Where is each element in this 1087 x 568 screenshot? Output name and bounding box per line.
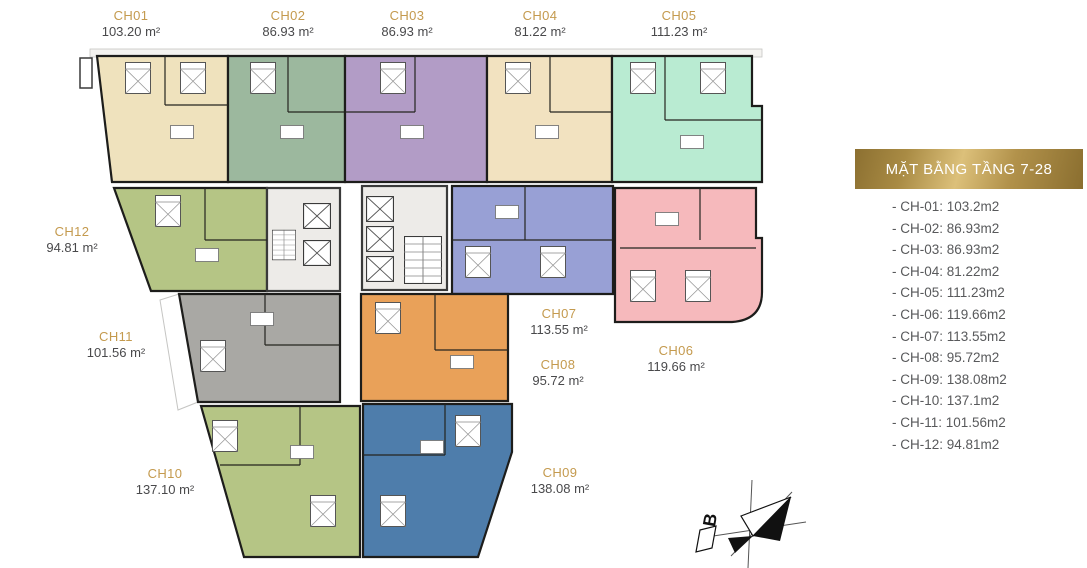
elevator-icon (304, 241, 331, 266)
table-icon (421, 441, 444, 454)
unit-label-ch05: CH05 111.23 m² (651, 8, 708, 40)
legend-item: - CH-11: 101.56m2 (892, 412, 1083, 434)
legend-item: - CH-09: 138.08m2 (892, 369, 1083, 391)
table-icon (536, 126, 559, 139)
unit-code: CH02 (262, 8, 313, 24)
table-icon (451, 356, 474, 369)
legend-item: - CH-05: 111.23m2 (892, 282, 1083, 304)
unit-code: CH04 (514, 8, 565, 24)
legend-item: - CH-03: 86.93m2 (892, 239, 1083, 261)
bed-icon (456, 416, 481, 447)
elevator-icon (304, 204, 331, 229)
bed-icon (631, 271, 656, 302)
legend-item: - CH-06: 119.66m2 (892, 304, 1083, 326)
unit-label-ch01: CH01 103.20 m² (102, 8, 161, 40)
legend-panel: MẶT BẰNG TẦNG 7-28 - CH-01: 103.2m2 - CH… (855, 149, 1083, 455)
bed-icon (381, 496, 406, 527)
unit-label-ch09: CH09 138.08 m² (531, 465, 590, 497)
unit-area: 103.20 m² (102, 24, 161, 40)
legend-item: - CH-12: 94.81m2 (892, 434, 1083, 456)
bed-icon (156, 196, 181, 227)
bed-icon (466, 247, 491, 278)
unit-code: CH11 (87, 329, 146, 345)
bed-icon (506, 63, 531, 94)
corner-balcony (80, 58, 92, 88)
unit-code: CH12 (46, 224, 97, 240)
legend-item: - CH-04: 81.22m2 (892, 261, 1083, 283)
table-icon (401, 126, 424, 139)
unit-label-ch12: CH12 94.81 m² (46, 224, 97, 256)
unit-area: 94.81 m² (46, 240, 97, 256)
unit-label-ch08: CH08 95.72 m² (532, 357, 583, 389)
unit-label-ch07: CH07 113.55 m² (530, 306, 588, 338)
bed-icon (686, 271, 711, 302)
unit-label-ch11: CH11 101.56 m² (87, 329, 146, 361)
unit-label-ch06: CH06 119.66 m² (647, 343, 705, 375)
table-icon (291, 446, 314, 459)
compass-flag (696, 526, 716, 552)
bed-icon (181, 63, 206, 94)
unit-code: CH08 (532, 357, 583, 373)
table-icon (251, 313, 274, 326)
unit-shape-ch01 (97, 56, 228, 182)
unit-area: 86.93 m² (381, 24, 432, 40)
unit-shape-ch03 (345, 56, 487, 182)
building-cores (267, 186, 447, 291)
table-icon (281, 126, 304, 139)
legend-list: - CH-01: 103.2m2 - CH-02: 86.93m2 - CH-0… (855, 189, 1083, 455)
stairs-icon (404, 236, 442, 284)
unit-area: 113.55 m² (530, 322, 588, 338)
bed-icon (251, 63, 276, 94)
building-units (97, 56, 762, 557)
table-icon (196, 249, 219, 262)
legend-item: - CH-07: 113.55m2 (892, 326, 1083, 348)
bed-icon (541, 247, 566, 278)
legend-title: MẶT BẰNG TẦNG 7-28 (886, 161, 1053, 178)
legend-item: - CH-01: 103.2m2 (892, 196, 1083, 218)
unit-area: 101.56 m² (87, 345, 146, 361)
unit-code: CH10 (136, 466, 195, 482)
stairs-icon (272, 230, 296, 260)
bed-icon (376, 303, 401, 334)
unit-code: CH06 (647, 343, 705, 359)
unit-code: CH01 (102, 8, 161, 24)
unit-shape-ch09 (363, 404, 512, 557)
unit-area: 95.72 m² (532, 373, 583, 389)
unit-area: 138.08 m² (531, 481, 590, 497)
unit-area: 86.93 m² (262, 24, 313, 40)
unit-shape-ch02 (228, 56, 345, 182)
table-icon (496, 206, 519, 219)
unit-label-ch04: CH04 81.22 m² (514, 8, 565, 40)
unit-code: CH03 (381, 8, 432, 24)
table-icon (171, 126, 194, 139)
bed-icon (201, 341, 226, 372)
compass-letter: B (699, 512, 721, 528)
unit-code: CH09 (531, 465, 590, 481)
unit-code: CH07 (530, 306, 588, 322)
unit-area: 137.10 m² (136, 482, 195, 498)
legend-header: MẶT BẰNG TẦNG 7-28 (855, 149, 1083, 189)
elevator-icon (367, 257, 394, 282)
unit-label-ch10: CH10 137.10 m² (136, 466, 195, 498)
bed-icon (701, 63, 726, 94)
bed-icon (213, 421, 238, 452)
unit-code: CH05 (651, 8, 708, 24)
legend-item: - CH-10: 137.1m2 (892, 390, 1083, 412)
unit-area: 119.66 m² (647, 359, 705, 375)
unit-label-ch02: CH02 86.93 m² (262, 8, 313, 40)
floorplan-page: B CH01 103.20 m² CH02 86.93 m² CH03 86.9… (0, 0, 1087, 568)
unit-area: 111.23 m² (651, 24, 708, 40)
elevator-icon (367, 227, 394, 252)
bed-icon (311, 496, 336, 527)
bed-icon (126, 63, 151, 94)
legend-item: - CH-08: 95.72m2 (892, 347, 1083, 369)
elevator-icon (367, 197, 394, 222)
north-compass: B (696, 480, 806, 568)
legend-item: - CH-02: 86.93m2 (892, 218, 1083, 240)
bed-icon (631, 63, 656, 94)
bed-icon (381, 63, 406, 94)
table-icon (681, 136, 704, 149)
table-icon (656, 213, 679, 226)
unit-area: 81.22 m² (514, 24, 565, 40)
unit-label-ch03: CH03 86.93 m² (381, 8, 432, 40)
